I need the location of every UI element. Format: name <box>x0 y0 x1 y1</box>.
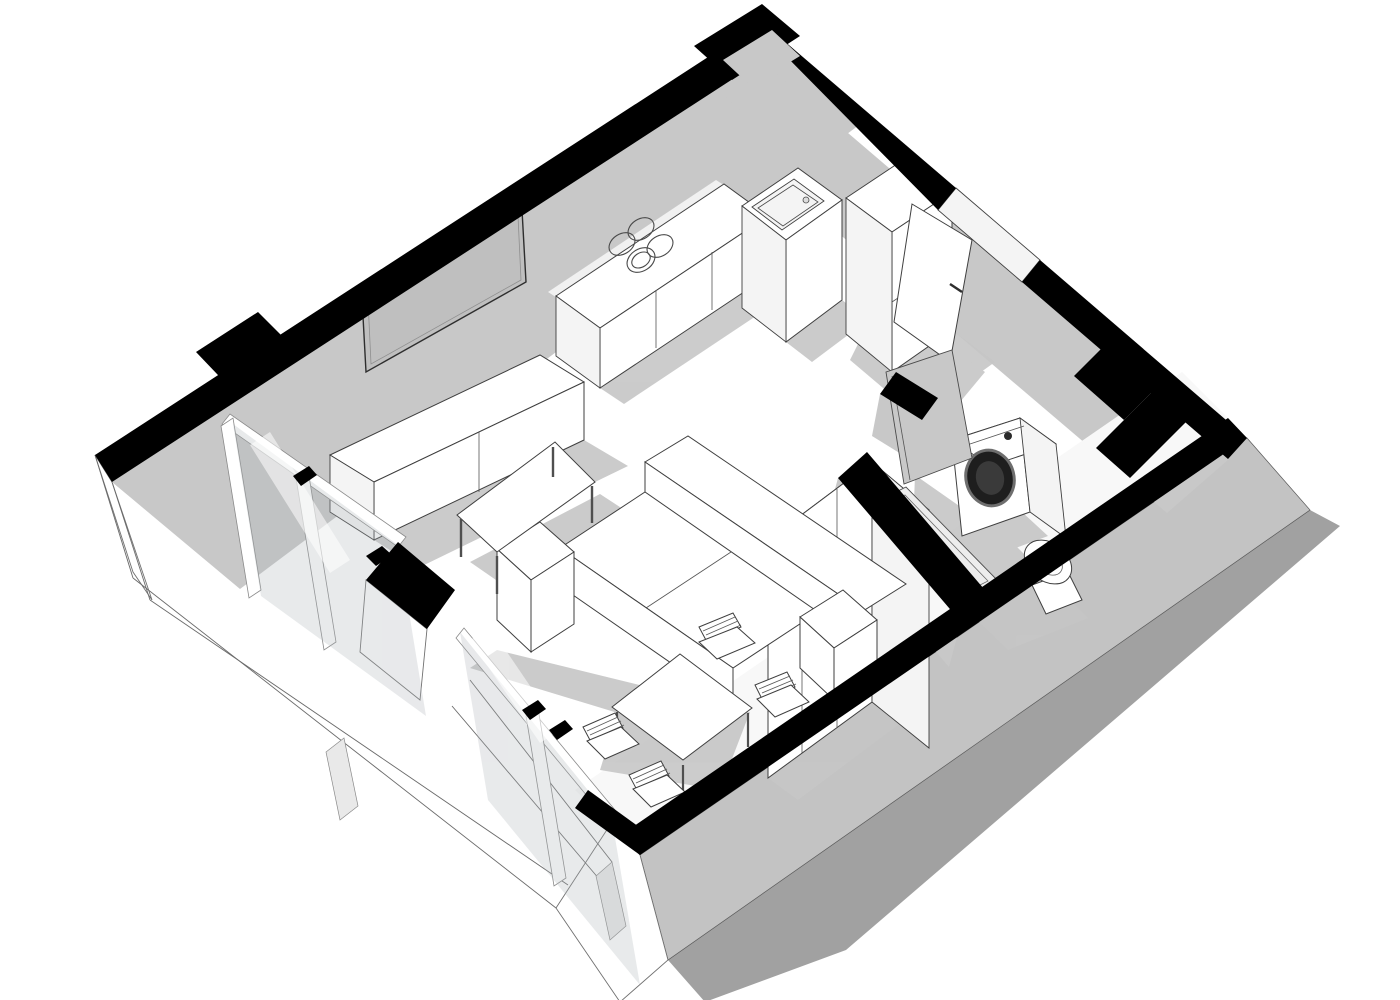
floorplan-canvas <box>0 0 1400 1000</box>
floorplan-svg <box>0 0 1400 1000</box>
sink-faucet <box>803 197 809 203</box>
washer-knob <box>1004 432 1012 440</box>
